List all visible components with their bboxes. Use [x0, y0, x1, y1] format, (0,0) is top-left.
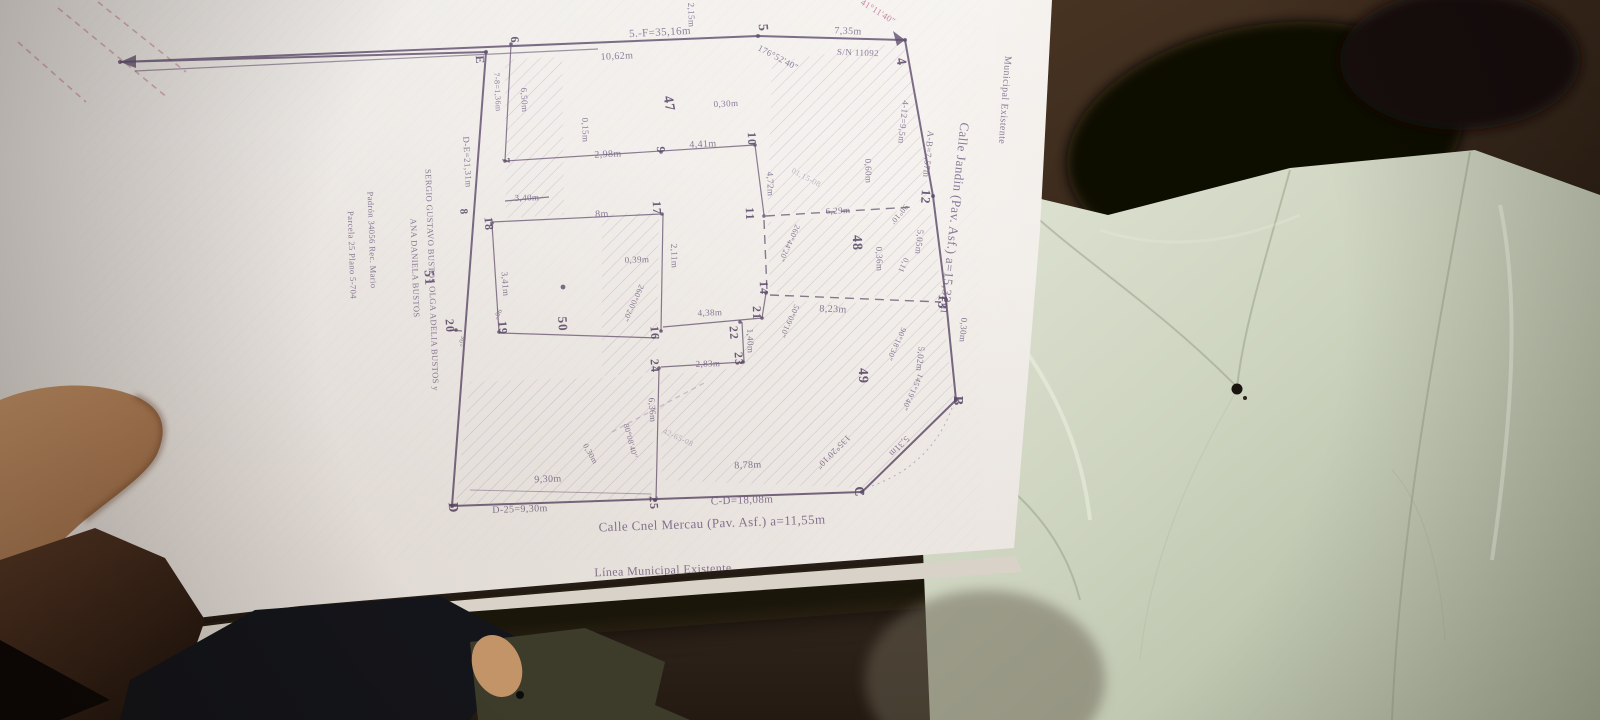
foreground [0, 0, 1600, 720]
shoe-eyelet [516, 691, 524, 699]
photo-scene: 5.-F=35,16m10,62m2,15m57,35mS/N 11092176… [0, 0, 1600, 720]
